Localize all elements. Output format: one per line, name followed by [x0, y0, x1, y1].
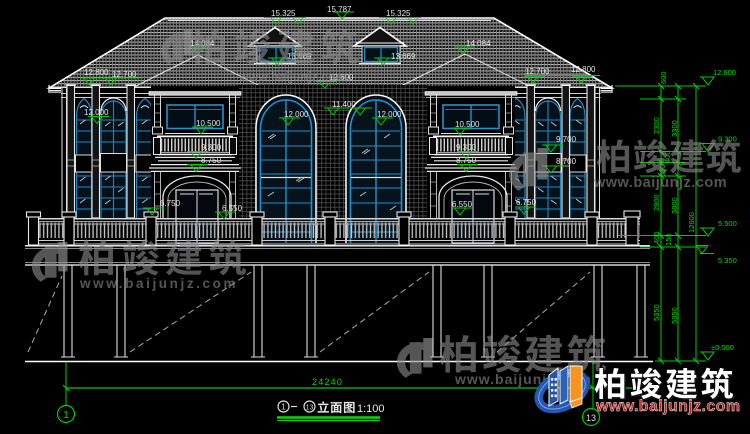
svg-text:11.400: 11.400: [332, 100, 356, 109]
svg-text:12600: 12600: [687, 212, 696, 233]
svg-text:±0.000: ±0.000: [711, 343, 734, 352]
svg-text:600: 600: [659, 71, 668, 84]
svg-text:12.700: 12.700: [112, 70, 137, 79]
svg-text:12.000: 12.000: [84, 108, 109, 117]
svg-text:5.500: 5.500: [718, 219, 737, 228]
svg-text:2300: 2300: [652, 117, 661, 134]
svg-text:1: 1: [281, 403, 286, 412]
svg-text:www.baijunjz.com: www.baijunjz.com: [595, 398, 741, 415]
svg-text:www.baijunjz.com: www.baijunjz.com: [593, 175, 727, 191]
svg-text:5350: 5350: [670, 307, 679, 324]
svg-text:3300: 3300: [670, 120, 679, 137]
svg-text:150: 150: [664, 233, 673, 246]
svg-text:3800: 3800: [670, 197, 679, 214]
svg-text:6.750: 6.750: [516, 198, 537, 207]
svg-text:www.baijunjz.com: www.baijunjz.com: [238, 70, 347, 84]
svg-text:5.350: 5.350: [718, 256, 737, 265]
svg-text:12.800: 12.800: [84, 68, 109, 77]
svg-text:1:100: 1:100: [357, 403, 385, 415]
svg-text:15.787: 15.787: [327, 5, 352, 14]
svg-text:9.700: 9.700: [556, 135, 577, 144]
svg-text:2800: 2800: [652, 194, 661, 211]
svg-text:12.700: 12.700: [525, 67, 550, 76]
svg-text:8.700: 8.700: [556, 157, 577, 166]
svg-text:www.baijunjz.com: www.baijunjz.com: [79, 276, 238, 291]
svg-text:12.800: 12.800: [571, 65, 596, 74]
svg-text:10.500: 10.500: [196, 119, 221, 128]
svg-text:12.000: 12.000: [284, 110, 309, 119]
svg-text:13: 13: [306, 405, 314, 412]
svg-text:9.300: 9.300: [456, 143, 477, 152]
svg-text:8.750: 8.750: [456, 156, 477, 165]
svg-text:15.325: 15.325: [386, 9, 411, 18]
svg-text:10.500: 10.500: [455, 120, 480, 129]
svg-text:6.550: 6.550: [222, 204, 243, 213]
svg-text:9.300: 9.300: [201, 143, 222, 152]
svg-text:6.550: 6.550: [452, 200, 473, 209]
svg-text:14.084: 14.084: [466, 39, 491, 48]
svg-text:8.750: 8.750: [201, 156, 222, 165]
svg-text:6.750: 6.750: [160, 199, 181, 208]
svg-text:12.600: 12.600: [713, 68, 736, 77]
svg-text:13.669: 13.669: [391, 52, 416, 61]
svg-text:15.325: 15.325: [271, 9, 296, 18]
svg-text:5350: 5350: [652, 304, 661, 321]
svg-text:24240: 24240: [312, 377, 343, 387]
svg-text:400: 400: [652, 231, 661, 244]
svg-text:12.000: 12.000: [377, 110, 402, 119]
svg-text:1: 1: [63, 410, 69, 421]
svg-text:13: 13: [586, 413, 596, 423]
